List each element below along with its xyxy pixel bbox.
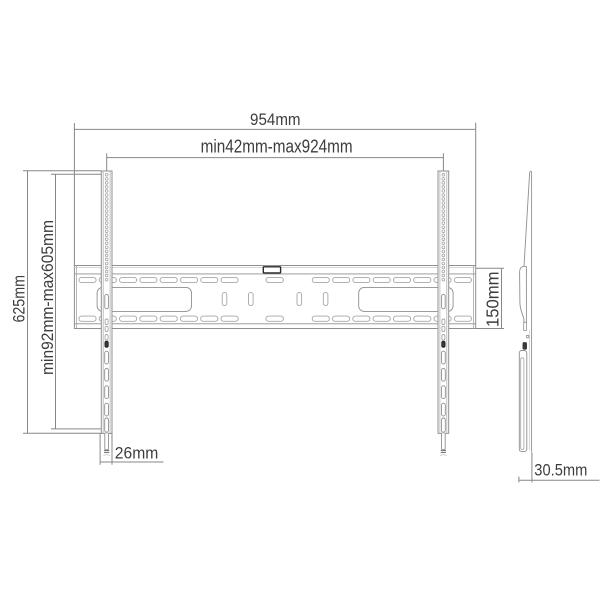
- svg-text:26mm: 26mm: [115, 443, 159, 462]
- svg-text:954mm: 954mm: [250, 110, 301, 129]
- svg-text:150mm: 150mm: [482, 272, 502, 328]
- svg-text:625mm: 625mm: [10, 275, 29, 323]
- svg-text:min42mm-max924mm: min42mm-max924mm: [201, 137, 353, 157]
- svg-text:min92mm-max605mm: min92mm-max605mm: [38, 220, 57, 375]
- svg-text:30.5mm: 30.5mm: [534, 461, 587, 480]
